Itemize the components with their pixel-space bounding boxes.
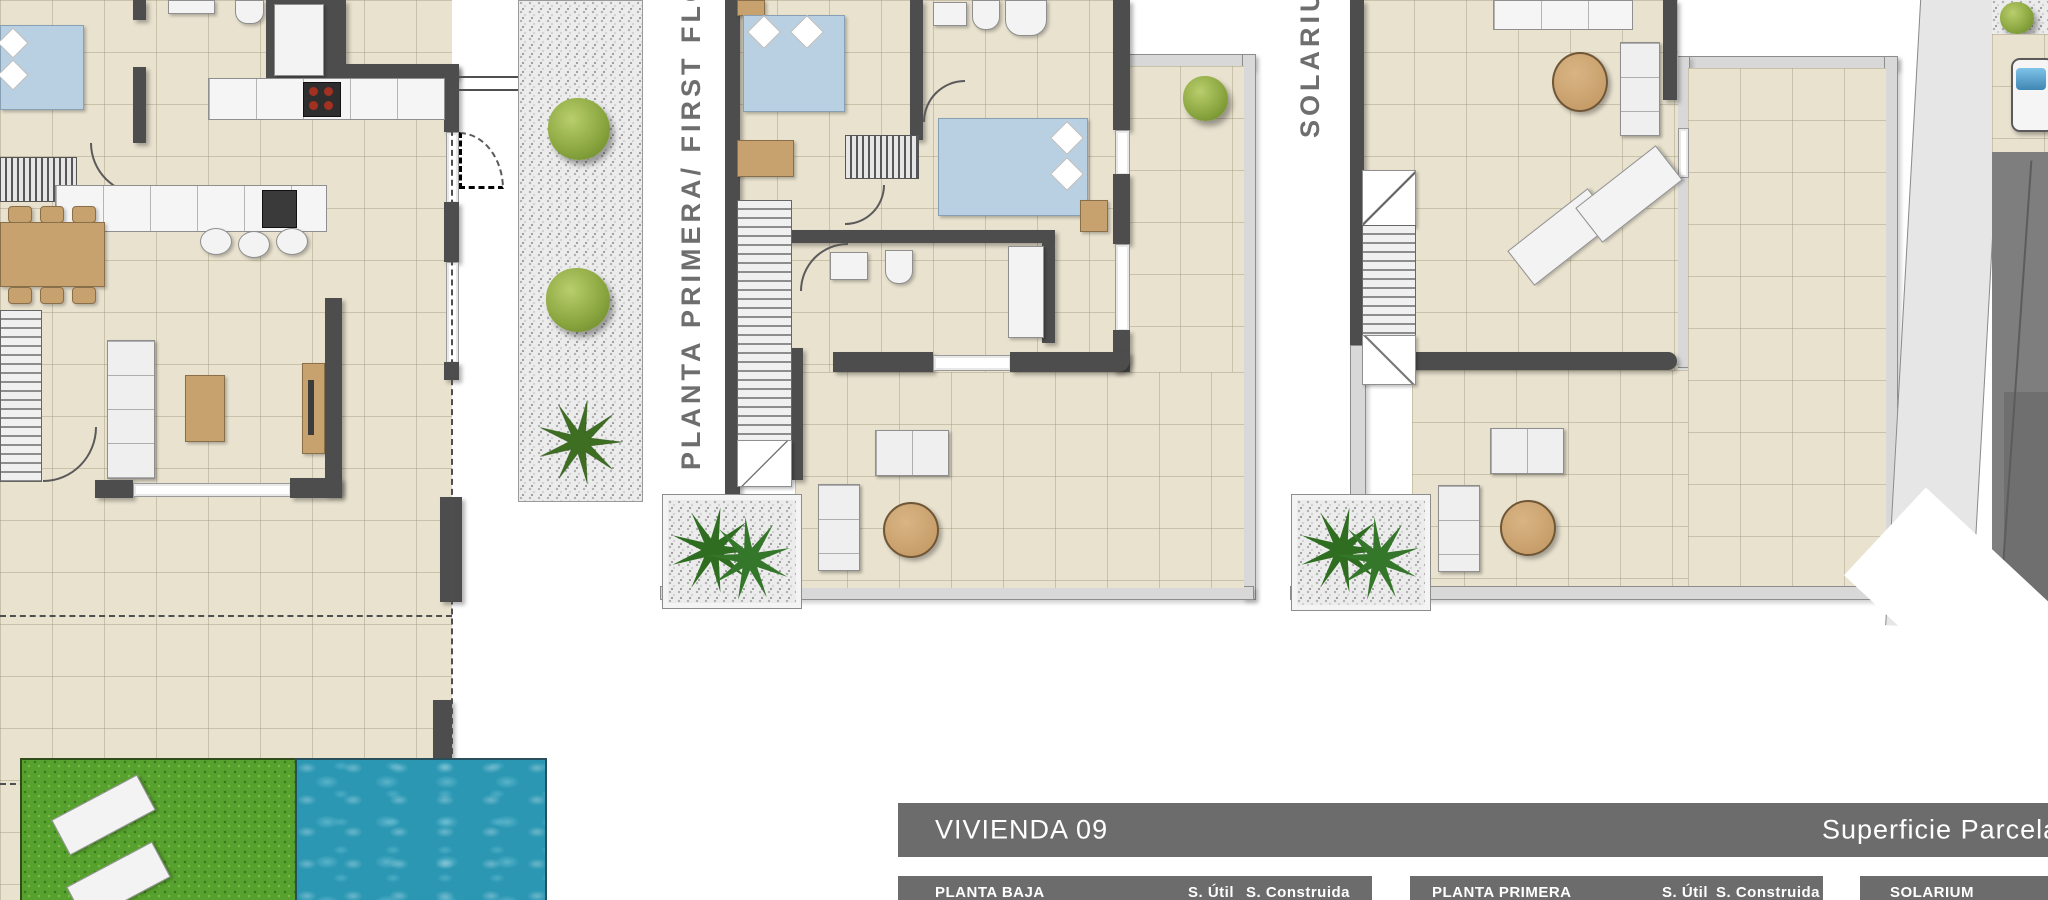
toilet-icon <box>972 0 1000 30</box>
table-title: PLANTA PRIMERA <box>1432 884 1572 900</box>
window <box>133 483 292 497</box>
villa-header-bar: VIVIENDA 09 Superficie Parcela <box>898 803 2048 857</box>
wall <box>1663 0 1677 100</box>
dimension-line <box>453 89 520 91</box>
nightstand-icon <box>737 0 765 16</box>
wall <box>133 67 146 143</box>
tv-icon <box>308 380 314 435</box>
table-bar-planta-baja: PLANTA BAJA S. Útil S. Construida <box>898 876 1372 900</box>
palm-plant-icon <box>534 398 626 486</box>
sink-icon <box>933 2 967 26</box>
round-table-icon <box>1552 52 1608 112</box>
wall <box>1010 352 1130 372</box>
pool <box>295 758 547 900</box>
sofa-icon <box>818 484 860 571</box>
chair-icon <box>40 206 64 223</box>
window <box>933 355 1012 371</box>
wall <box>1113 0 1130 130</box>
wall <box>910 0 923 140</box>
sink-icon <box>830 252 868 280</box>
col-built-label: S. Construida <box>1246 884 1350 900</box>
first-floor-label: PLANTA PRIMERA/ FIRST FLOOR <box>676 0 707 470</box>
wall <box>290 478 342 498</box>
chair-icon <box>8 287 32 304</box>
wardrobe-icon <box>845 135 919 179</box>
parcel-boundary <box>451 90 453 784</box>
solarium-label: SOLARIUM <box>1295 0 1326 138</box>
terrace-parapet <box>1242 54 1256 600</box>
villa-surface-label: Superficie Parcela <box>1822 815 2048 846</box>
terrace-floor <box>795 372 1244 588</box>
terrace-floor <box>1688 68 1886 586</box>
wall <box>133 0 146 20</box>
window <box>1115 130 1130 176</box>
counter-bench <box>1493 0 1633 30</box>
wall <box>95 480 133 498</box>
stairs-landing <box>1362 335 1416 385</box>
window <box>1115 244 1130 332</box>
round-table-icon <box>883 502 939 558</box>
cabinet-icon <box>168 0 215 14</box>
table-title: SOLARIUM <box>1890 884 1974 900</box>
wall <box>1113 174 1130 244</box>
dimension-line <box>453 76 520 78</box>
bush-icon <box>546 268 610 332</box>
chair-icon <box>72 206 96 223</box>
chair-icon <box>72 287 96 304</box>
round-table-icon <box>1500 500 1556 556</box>
coffee-table <box>185 375 225 442</box>
stairs <box>0 310 42 482</box>
bathtub-icon <box>1005 0 1047 36</box>
floorplan-sheet: PLANTA PRIMERA/ FIRST FLOOR <box>0 0 2048 900</box>
toilet-icon <box>885 250 913 284</box>
col-util-label: S. Útil <box>1662 884 1708 900</box>
stairs-landing <box>1362 170 1416 227</box>
sofa-icon <box>1490 428 1564 474</box>
chair-icon <box>40 287 64 304</box>
sofa-icon <box>1438 485 1480 572</box>
car-windshield <box>2016 68 2046 90</box>
chair-icon <box>8 206 32 223</box>
parcel-boundary <box>0 615 452 617</box>
hob-burner <box>309 101 318 110</box>
stool-icon <box>276 228 308 255</box>
stairs <box>737 200 792 442</box>
toilet-icon <box>235 0 264 24</box>
sofa-icon <box>107 340 155 479</box>
wall <box>1412 352 1677 370</box>
window <box>1678 128 1689 178</box>
sofa-icon <box>1620 42 1660 136</box>
wall <box>833 352 933 372</box>
bush-icon <box>548 98 610 160</box>
dining-table <box>0 222 105 287</box>
hob-burner <box>324 101 333 110</box>
table-title: PLANTA BAJA <box>935 884 1045 900</box>
stool-icon <box>200 228 232 255</box>
dresser-icon <box>737 140 794 177</box>
stairs <box>1362 225 1416 337</box>
villa-title: VIVIENDA 09 <box>935 815 1108 846</box>
door-arc <box>459 132 504 189</box>
bush-icon <box>2000 2 2034 34</box>
col-util-label: S. Útil <box>1188 884 1234 900</box>
hob-icon <box>303 82 341 117</box>
bush-icon <box>1183 76 1228 121</box>
shower-icon <box>1008 246 1044 338</box>
sofa-icon <box>875 430 949 476</box>
stool-icon <box>238 231 270 258</box>
col-built-label: S. Construida <box>1716 884 1820 900</box>
hob-burner <box>324 87 333 96</box>
table-bar-planta-primera: PLANTA PRIMERA S. Útil S. Construida <box>1410 876 1823 900</box>
wall <box>325 298 342 495</box>
stairs-landing <box>737 440 792 487</box>
table-bar-solarium: SOLARIUM <box>1860 876 2048 900</box>
fridge-icon <box>274 4 324 76</box>
wall <box>778 230 1055 243</box>
nightstand-icon <box>1080 200 1108 232</box>
hob-burner <box>309 87 318 96</box>
coffee-machine-icon <box>262 190 297 228</box>
